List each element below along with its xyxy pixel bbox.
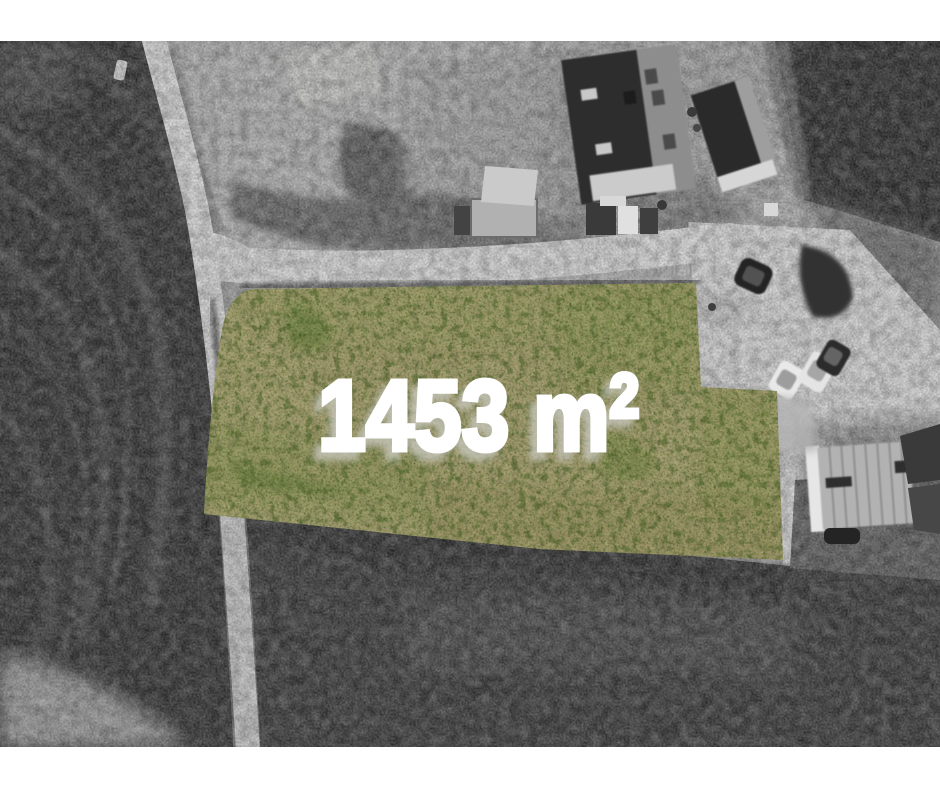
svg-text:1453 m2: 1453 m2 [318,360,639,472]
